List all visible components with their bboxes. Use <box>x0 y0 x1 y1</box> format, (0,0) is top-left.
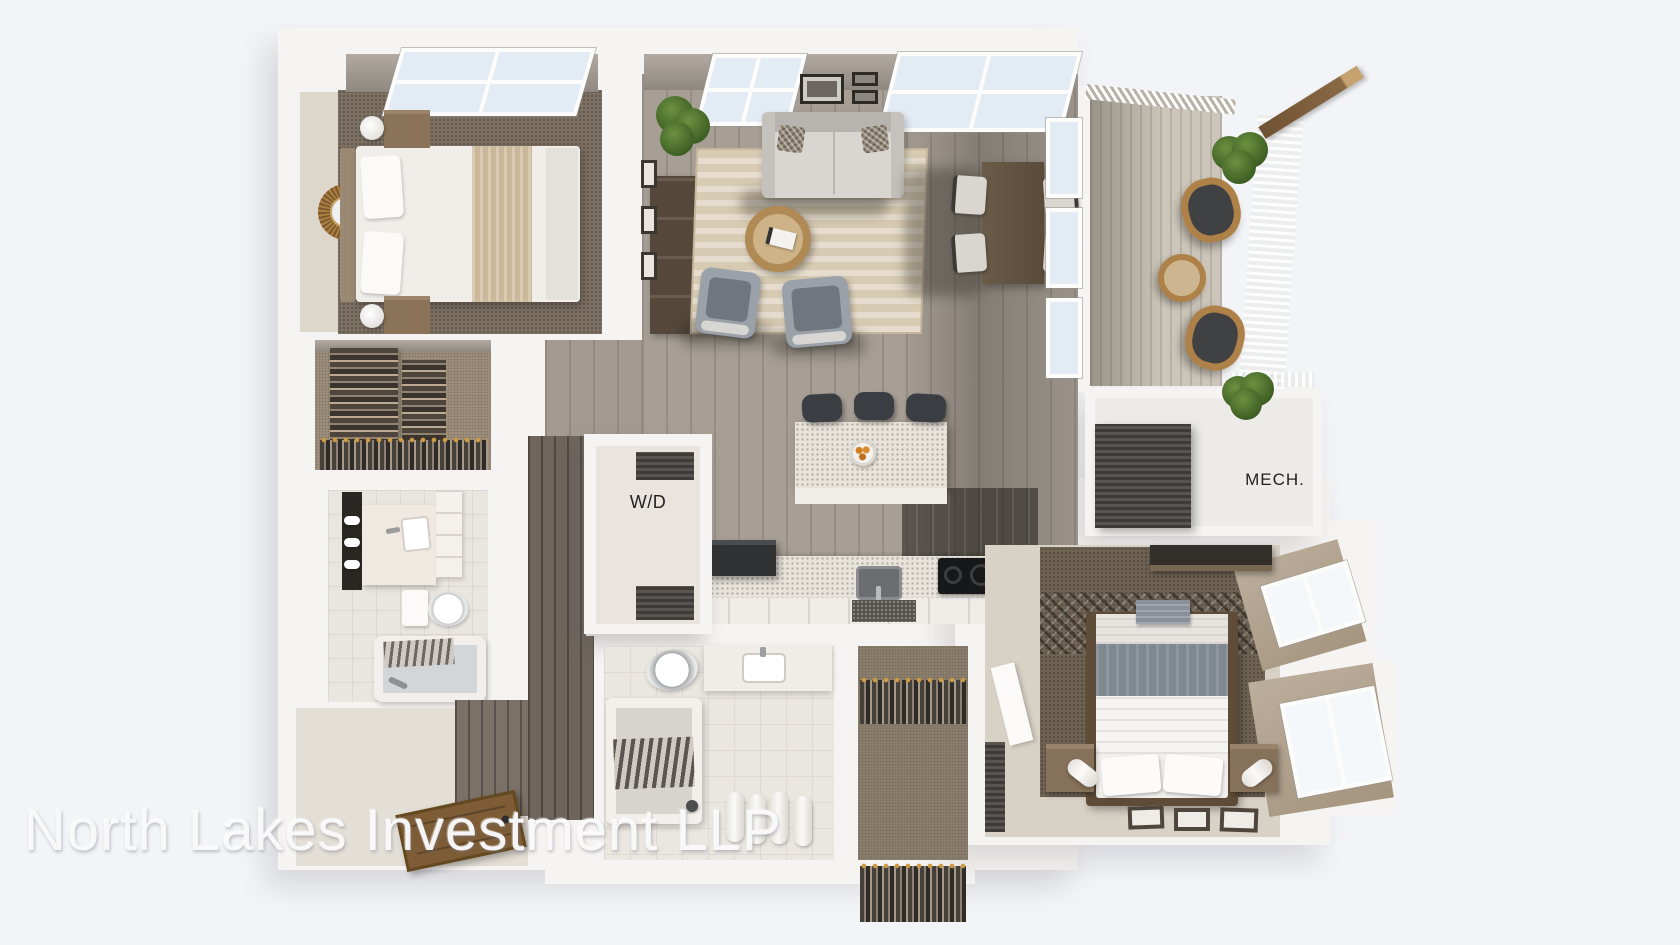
kitchen-island-base <box>795 488 947 504</box>
wood-beam <box>1258 66 1364 139</box>
bathtub1-towel <box>383 638 454 668</box>
balcony-door-pane <box>1046 208 1082 288</box>
mech-label: MECH. <box>1232 470 1318 490</box>
burner-icon <box>944 566 962 584</box>
coffee-table-book <box>765 227 796 250</box>
bedroom2-shoe-shelf <box>985 742 1005 832</box>
bedroom2-window-lower <box>1280 686 1393 799</box>
wall-art-frame <box>852 72 878 86</box>
kitchen-bench-appliance <box>706 540 776 576</box>
balcony-bush-icon <box>1222 372 1280 422</box>
wall-art-frame <box>852 90 878 104</box>
armchair-front <box>792 331 847 346</box>
window-mullion-icon <box>1326 698 1347 785</box>
washer-icon <box>636 452 694 480</box>
hallway-dark-wood <box>528 436 586 636</box>
closet1-folded-clothes <box>402 360 446 440</box>
dining-table <box>982 162 1044 284</box>
bed1-runner-blanket <box>472 146 532 302</box>
window-mullion-icon <box>892 90 1069 94</box>
throw-pillow-icon <box>776 124 805 153</box>
rolled-towel-icon <box>794 796 812 846</box>
bed2-gray-blanket <box>1096 644 1228 696</box>
sofa-armrest <box>891 112 904 198</box>
plant-foliage <box>660 122 694 156</box>
bathroom1-cabinet <box>436 490 462 578</box>
wall-art-frame <box>641 252 657 280</box>
closet1-folded-clothes <box>330 348 398 444</box>
closet2-hanging-clothes-bottom <box>860 866 966 922</box>
bed1-headboard <box>340 148 356 302</box>
nightstand <box>384 110 430 148</box>
bar-stool <box>854 392 894 420</box>
sofa-armrest <box>762 112 775 198</box>
vanity-sconce-icon <box>344 516 360 525</box>
toilet-bowl-icon <box>428 592 468 626</box>
bathroom2-sink <box>742 653 786 683</box>
floor-frame-art <box>1128 805 1165 829</box>
table-lamp-icon <box>360 116 384 140</box>
toilet-tank <box>402 590 428 626</box>
vanity-sconce-icon <box>344 560 360 569</box>
balcony-door-pane <box>1046 298 1082 378</box>
wall-art-frame <box>800 74 844 104</box>
watermark: North Lakes Investment LLP <box>24 802 782 860</box>
armchair <box>694 267 762 340</box>
bush-foliage <box>1222 150 1256 184</box>
fruit-bowl-icon <box>850 440 876 466</box>
bedroom1-window <box>382 48 595 116</box>
nightstand <box>384 296 430 334</box>
bar-stool <box>801 393 842 423</box>
bed2-duvet <box>1096 696 1228 754</box>
kitchen-peninsula <box>852 600 916 622</box>
closet1-hanging-clothes <box>320 440 488 470</box>
washer-dryer-label: W/D <box>596 492 700 513</box>
window-mullion-icon <box>395 80 582 84</box>
armchair <box>781 275 853 348</box>
bed2-pillow <box>1100 754 1161 797</box>
hallway-dark-wood <box>528 636 594 820</box>
balcony-bush-icon <box>1212 132 1274 184</box>
bathtub2-mat <box>613 737 695 790</box>
throw-pillow-icon <box>860 124 889 153</box>
bed2-folded-throw <box>1136 600 1190 624</box>
closet2-hanging-clothes-top <box>860 680 966 724</box>
bed1-foot-fold <box>546 148 578 300</box>
floorplan-render: W/D MECH. <box>0 0 1680 945</box>
wall-art-frame <box>641 206 657 234</box>
balcony-door-pane <box>1046 118 1082 198</box>
bar-stool <box>905 393 946 423</box>
floor-frame-art <box>1220 807 1259 832</box>
bed1-pillow <box>360 155 404 220</box>
bed1-pillow <box>360 231 404 296</box>
window-mullion-icon <box>708 88 795 92</box>
armchair-seat <box>791 285 843 332</box>
window-mullion-icon <box>1303 577 1323 632</box>
bathroom1-sink <box>400 516 431 553</box>
mechanical-unit <box>1095 424 1191 528</box>
wall-art-frame <box>641 160 657 188</box>
floor-frame-art <box>1174 808 1210 831</box>
dining-chair <box>951 175 988 215</box>
art-photo <box>807 81 837 97</box>
faucet-icon <box>760 647 766 657</box>
sofa <box>762 112 904 198</box>
coffee-table <box>745 206 811 272</box>
table-lamp-icon <box>360 304 384 328</box>
wicker-side-table <box>1158 254 1206 302</box>
bush-foliage <box>1230 388 1262 420</box>
bedroom2-dresser <box>1150 545 1272 571</box>
bed2-mattress <box>1096 614 1228 798</box>
armchair-seat <box>705 277 752 323</box>
sofa-cushion-seam <box>833 132 835 194</box>
dining-chair <box>951 233 988 273</box>
dryer-icon <box>636 586 694 620</box>
bathroom2-vanity <box>704 645 832 691</box>
bed2-pillow <box>1162 754 1223 797</box>
armchair-front <box>701 320 750 336</box>
vanity-sconce-icon <box>344 538 360 547</box>
